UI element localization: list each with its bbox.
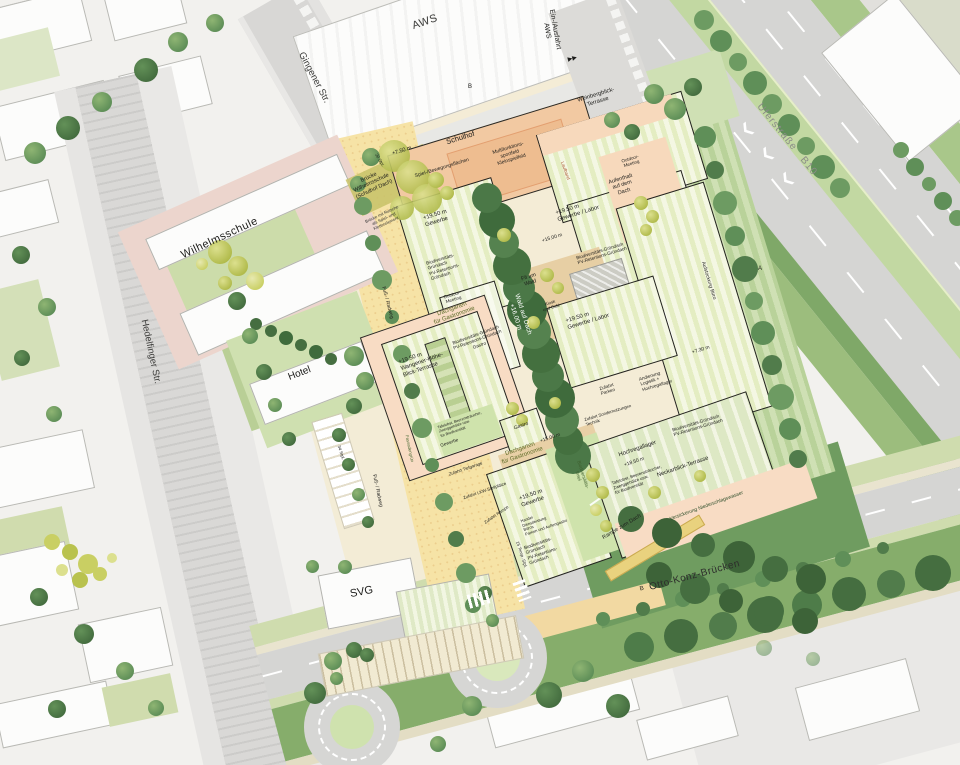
tree <box>360 648 374 662</box>
tree <box>30 588 48 606</box>
tree <box>596 486 609 499</box>
tree <box>134 58 158 82</box>
tree <box>46 406 62 422</box>
tree <box>646 210 659 223</box>
tree <box>282 432 296 446</box>
garden-cluster <box>44 534 60 550</box>
context-building <box>0 541 79 629</box>
tree <box>38 298 56 316</box>
tree <box>14 350 30 366</box>
tree-row-otto-north <box>596 612 610 626</box>
tree-row-otto-south <box>624 632 654 662</box>
label-marker-a: A <box>758 266 762 273</box>
tree <box>430 736 446 752</box>
tree <box>756 640 772 656</box>
tree <box>536 682 562 708</box>
context-building <box>0 179 59 242</box>
tree <box>330 672 343 685</box>
tree <box>684 78 702 96</box>
label-marker-b-top: B <box>468 84 472 91</box>
tree <box>148 700 164 716</box>
tree <box>624 124 640 140</box>
site-plan-canvas: ❯ ❯ ❯ AWS Ein-/Ausfahrt AWS ▶▶ Gingener … <box>0 0 960 765</box>
tree <box>644 84 664 104</box>
tree <box>306 560 319 573</box>
tree <box>228 256 248 276</box>
tree <box>604 112 620 128</box>
tree <box>196 258 208 270</box>
tree <box>356 372 374 390</box>
tree <box>694 470 706 482</box>
tree <box>648 486 661 499</box>
tree <box>74 624 94 644</box>
tree <box>246 272 264 290</box>
tree <box>606 694 630 718</box>
tree <box>540 268 554 282</box>
tree <box>206 14 224 32</box>
tree <box>497 228 511 242</box>
tree <box>590 504 602 516</box>
tree <box>440 186 454 200</box>
tree <box>346 398 362 414</box>
tree <box>352 488 365 501</box>
tree <box>56 116 80 140</box>
context-building <box>0 429 95 511</box>
tree <box>344 346 364 366</box>
context-green <box>0 279 60 381</box>
tree <box>362 516 374 528</box>
tree <box>486 614 499 627</box>
tree <box>168 32 188 52</box>
tree <box>48 700 66 718</box>
tree <box>586 468 600 482</box>
tree <box>116 662 134 680</box>
tree <box>412 184 442 214</box>
tree <box>12 246 30 264</box>
tree <box>228 292 246 310</box>
tree <box>324 652 342 670</box>
tree <box>268 398 282 412</box>
tree <box>664 98 686 120</box>
tree <box>256 364 272 380</box>
tree <box>218 276 232 290</box>
tree <box>24 142 46 164</box>
tree-row-east <box>694 126 716 148</box>
context-green <box>102 673 179 727</box>
tree <box>338 560 352 574</box>
tree-band-wald <box>472 183 502 213</box>
tree <box>640 224 652 236</box>
tree <box>572 660 594 682</box>
tree-row-b10-east <box>893 142 909 158</box>
tree <box>304 682 326 704</box>
tree <box>342 458 355 471</box>
tree <box>552 282 564 294</box>
tree <box>462 696 482 716</box>
tree <box>634 196 648 210</box>
tree <box>332 428 346 442</box>
tree <box>806 652 820 666</box>
tree <box>549 397 561 409</box>
tree <box>92 92 112 112</box>
tree <box>242 328 258 344</box>
tree <box>506 402 519 415</box>
tree-row-b10 <box>694 10 714 30</box>
